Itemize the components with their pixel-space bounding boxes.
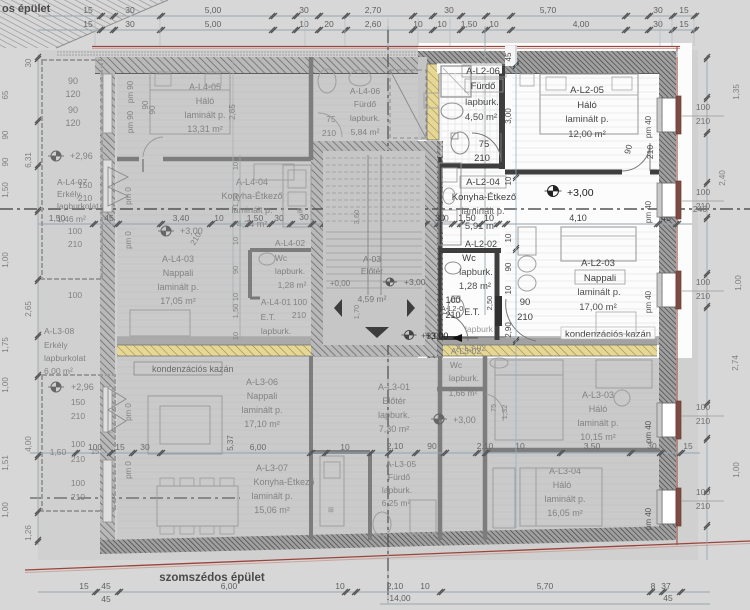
svg-text:1,50: 1,50 <box>247 213 264 223</box>
svg-text:Wc: Wc <box>450 360 463 370</box>
svg-text:15,06 m²: 15,06 m² <box>254 505 290 515</box>
svg-text:E.T.: E.T. <box>464 307 480 317</box>
svg-text:90: 90 <box>427 441 437 451</box>
svg-text:10: 10 <box>504 176 513 185</box>
svg-text:4,50 m²: 4,50 m² <box>465 112 497 123</box>
svg-text:100: 100 <box>68 290 82 300</box>
svg-text:45: 45 <box>104 213 114 223</box>
svg-text:Wc: Wc <box>462 253 476 264</box>
svg-text:pm 40: pm 40 <box>644 290 653 313</box>
svg-text:A-L4-01: A-L4-01 <box>261 297 292 307</box>
svg-text:10: 10 <box>231 293 240 301</box>
svg-text:laminált p.: laminált p. <box>251 491 292 501</box>
svg-text:pm 40: pm 40 <box>644 507 653 530</box>
svg-text:16,05 m²: 16,05 m² <box>547 508 583 518</box>
svg-text:pm 90: pm 90 <box>126 80 135 103</box>
svg-text:kondenzációs kazán: kondenzációs kazán <box>565 329 651 340</box>
svg-text:2,74: 2,74 <box>731 355 740 371</box>
svg-text:1,50: 1,50 <box>231 304 240 319</box>
svg-text:A-L3-05: A-L3-05 <box>386 459 417 469</box>
svg-text:lapburk.: lapburk. <box>378 410 410 420</box>
svg-text:3,00: 3,00 <box>504 108 513 124</box>
svg-text:pm 0: pm 0 <box>124 461 133 479</box>
svg-text:10: 10 <box>437 19 447 29</box>
svg-text:30: 30 <box>435 213 445 223</box>
svg-text:10: 10 <box>340 442 350 452</box>
svg-text:210: 210 <box>68 239 82 249</box>
svg-text:210: 210 <box>696 501 710 511</box>
svg-text:210: 210 <box>78 193 92 203</box>
svg-text:210: 210 <box>322 128 336 138</box>
svg-text:A-L2-04: A-L2-04 <box>466 177 500 188</box>
svg-text:pm 40: pm 40 <box>644 200 653 223</box>
svg-text:E.T.: E.T. <box>261 312 276 322</box>
svg-text:210: 210 <box>645 145 655 159</box>
svg-text:5,84 m²: 5,84 m² <box>351 127 380 137</box>
svg-text:17,05 m²: 17,05 m² <box>160 296 196 306</box>
svg-text:laminált p.: laminált p. <box>157 282 198 292</box>
svg-text:90: 90 <box>504 262 513 271</box>
svg-text:15: 15 <box>679 19 689 29</box>
svg-text:pm 0: pm 0 <box>124 187 133 205</box>
svg-text:Előtér: Előtér <box>382 396 406 406</box>
svg-text:Háló: Háló <box>577 100 597 111</box>
svg-text:Wc: Wc <box>275 253 288 263</box>
svg-text:13,31 m²: 13,31 m² <box>187 124 223 134</box>
svg-text:A-L3-01: A-L3-01 <box>378 382 410 392</box>
svg-text:2,65: 2,65 <box>24 301 33 317</box>
svg-text:210: 210 <box>696 416 710 426</box>
svg-text:+3,00: +3,00 <box>404 277 426 287</box>
svg-text:15: 15 <box>83 5 93 15</box>
svg-text:pm 0: pm 0 <box>124 231 133 249</box>
svg-text:1,50: 1,50 <box>49 213 66 223</box>
svg-text:1,75: 1,75 <box>1 337 10 353</box>
svg-text:1,50: 1,50 <box>458 213 476 223</box>
svg-text:1,35: 1,35 <box>732 84 741 100</box>
svg-text:5,37: 5,37 <box>226 435 235 451</box>
svg-text:lapburk.: lapburk. <box>350 113 380 123</box>
svg-text:Nappali: Nappali <box>247 391 278 401</box>
svg-text:75: 75 <box>489 404 498 412</box>
svg-text:lapburkolat: lapburkolat <box>44 353 86 363</box>
svg-text:2,40: 2,40 <box>718 170 727 186</box>
svg-text:3,50: 3,50 <box>584 441 601 451</box>
svg-text:30: 30 <box>24 58 33 67</box>
svg-text:30: 30 <box>125 19 135 29</box>
svg-text:Háló: Háló <box>553 480 572 490</box>
svg-text:1,00: 1,00 <box>1 252 10 268</box>
svg-text:210: 210 <box>292 310 306 320</box>
svg-text:10: 10 <box>515 441 525 451</box>
svg-text:30: 30 <box>125 5 135 15</box>
svg-text:30: 30 <box>274 213 284 223</box>
svg-text:210: 210 <box>445 310 460 320</box>
svg-text:lapburk.: lapburk. <box>275 266 305 276</box>
svg-text:⊞: ⊞ <box>328 507 334 514</box>
svg-text:15: 15 <box>79 581 89 591</box>
svg-text:10: 10 <box>420 581 430 591</box>
svg-text:A-L2-06: A-L2-06 <box>466 66 500 77</box>
svg-text:14,00: 14,00 <box>389 593 411 603</box>
svg-text:6,00: 6,00 <box>250 442 267 452</box>
svg-text:30: 30 <box>299 212 309 222</box>
svg-text:pm 0: pm 0 <box>124 403 133 421</box>
svg-text:+2,96: +2,96 <box>71 382 94 392</box>
svg-text:1,51: 1,51 <box>1 455 10 471</box>
svg-text:laminált p.: laminált p. <box>544 494 585 504</box>
svg-text:3,60: 3,60 <box>352 210 361 225</box>
svg-text:1,00: 1,00 <box>1 377 10 393</box>
svg-text:30: 30 <box>653 5 663 15</box>
svg-text:A-L3-07: A-L3-07 <box>256 463 288 473</box>
svg-text:1,26: 1,26 <box>24 525 33 541</box>
svg-text:240: 240 <box>693 204 707 214</box>
svg-text:Nappali: Nappali <box>163 268 194 278</box>
svg-text:+3,00: +3,00 <box>453 415 476 425</box>
svg-text:90: 90 <box>68 105 78 115</box>
svg-text:10: 10 <box>214 213 224 223</box>
svg-text:100: 100 <box>68 226 82 236</box>
svg-text:17,10 m²: 17,10 m² <box>244 419 280 429</box>
svg-text:A-L4-03: A-L4-03 <box>162 254 194 264</box>
svg-text:A-L2-03: A-L2-03 <box>581 258 615 269</box>
svg-text:10: 10 <box>231 237 240 245</box>
svg-text:Erkély: Erkély <box>44 340 68 350</box>
svg-text:pm 90: pm 90 <box>126 110 135 133</box>
svg-text:+3,00: +3,00 <box>567 187 594 199</box>
svg-text:2,10: 2,10 <box>477 441 494 451</box>
svg-text:1,28 m²: 1,28 m² <box>459 281 491 292</box>
svg-text:Nappali: Nappali <box>584 273 616 284</box>
svg-text:100: 100 <box>293 297 307 307</box>
svg-text:A-L3-08: A-L3-08 <box>44 326 75 336</box>
svg-text:30: 30 <box>299 5 309 15</box>
svg-text:15: 15 <box>115 442 125 452</box>
svg-text:10: 10 <box>335 581 345 591</box>
svg-text:6,00: 6,00 <box>221 581 238 591</box>
svg-text:10: 10 <box>504 233 513 242</box>
svg-text:os épület: os épület <box>2 3 51 15</box>
svg-text:laminált p.: laminált p. <box>565 114 608 125</box>
svg-text:30: 30 <box>444 5 454 15</box>
svg-text:6,25 m²: 6,25 m² <box>382 498 411 508</box>
svg-text:90: 90 <box>231 266 240 274</box>
svg-text:lapburk: lapburk <box>465 324 494 334</box>
svg-text:A-L3-02: A-L3-02 <box>456 343 487 353</box>
svg-text:15: 15 <box>679 5 689 15</box>
svg-text:150: 150 <box>71 397 85 407</box>
svg-text:5,00: 5,00 <box>205 5 222 15</box>
svg-text:17,00 m²: 17,00 m² <box>579 302 617 313</box>
svg-text:4,10: 4,10 <box>569 213 587 223</box>
svg-text:Előtér: Előtér <box>361 266 383 276</box>
svg-text:3,40: 3,40 <box>173 213 190 223</box>
svg-text:laminált p.: laminált p. <box>577 418 618 428</box>
svg-text:laminált p.: laminált p. <box>184 110 225 120</box>
svg-text:6,00 m²: 6,00 m² <box>44 366 73 376</box>
svg-text:Fürdő: Fürdő <box>471 81 496 92</box>
svg-text:10: 10 <box>504 285 513 294</box>
svg-text:150: 150 <box>78 180 92 190</box>
svg-text:kondenzációs kazán: kondenzációs kazán <box>152 364 234 374</box>
svg-text:1,00: 1,00 <box>734 275 743 291</box>
svg-text:2,70: 2,70 <box>365 5 382 15</box>
svg-text:1,70: 1,70 <box>352 305 361 320</box>
svg-text:1,50: 1,50 <box>1 182 10 198</box>
svg-text:90: 90 <box>520 297 531 308</box>
svg-text:A-L2-02: A-L2-02 <box>465 239 497 249</box>
svg-text:210: 210 <box>696 291 710 301</box>
svg-text:Konyha-Étkező: Konyha-Étkező <box>253 477 314 487</box>
svg-text:210: 210 <box>696 116 710 126</box>
svg-text:lapburk.: lapburk. <box>261 326 291 336</box>
svg-text:120: 120 <box>65 89 80 99</box>
svg-text:100: 100 <box>696 277 710 287</box>
svg-text:+2,96: +2,96 <box>70 151 93 161</box>
svg-text:A-L4-02: A-L4-02 <box>275 238 306 248</box>
svg-text:1,28 m²: 1,28 m² <box>278 280 307 290</box>
svg-text:1,00: 1,00 <box>732 462 741 478</box>
svg-text:2,50: 2,50 <box>485 296 494 311</box>
svg-text:szomszédos épület: szomszédos épület <box>159 572 265 584</box>
svg-text:2,10: 2,10 <box>387 581 404 591</box>
svg-text:4,59 m²: 4,59 m² <box>358 294 387 304</box>
svg-text:5,70: 5,70 <box>537 581 554 591</box>
svg-text:100: 100 <box>71 439 85 449</box>
svg-text:A-L2-05: A-L2-05 <box>570 85 604 96</box>
svg-text:210: 210 <box>517 312 533 323</box>
svg-text:90: 90 <box>68 76 78 86</box>
svg-text:pm 40: pm 40 <box>644 115 653 138</box>
svg-text:100: 100 <box>696 402 710 412</box>
svg-text:lapburk.: lapburk. <box>465 97 499 108</box>
svg-text:10: 10 <box>489 19 499 29</box>
svg-text:210: 210 <box>474 153 490 164</box>
svg-text:30: 30 <box>140 442 150 452</box>
svg-text:Konyha-Étkező: Konyha-Étkező <box>452 192 516 203</box>
svg-text:+3,00: +3,00 <box>426 331 449 341</box>
svg-text:15: 15 <box>83 19 93 29</box>
svg-text:Fürdő: Fürdő <box>388 472 410 482</box>
svg-text:100: 100 <box>71 478 85 488</box>
svg-text:1,50: 1,50 <box>50 447 67 457</box>
svg-text:lapburk.: lapburk. <box>449 373 479 383</box>
svg-text:A-L3-03: A-L3-03 <box>582 390 614 400</box>
svg-text:90: 90 <box>148 105 157 114</box>
svg-text:+3,00: +3,00 <box>180 226 203 236</box>
svg-text:1,66 m²: 1,66 m² <box>449 388 478 398</box>
svg-text:90: 90 <box>1 130 10 139</box>
svg-text:2,90: 2,90 <box>504 322 513 338</box>
svg-text:120: 120 <box>65 118 80 128</box>
svg-text:2,65: 2,65 <box>228 104 237 120</box>
svg-text:30: 30 <box>653 19 663 29</box>
svg-text:210: 210 <box>71 492 85 502</box>
svg-text:10: 10 <box>299 19 309 29</box>
svg-text:4,00: 4,00 <box>24 436 33 452</box>
svg-text:45: 45 <box>663 593 673 603</box>
svg-text:15: 15 <box>683 441 693 451</box>
svg-text:A-L4-06: A-L4-06 <box>350 86 381 96</box>
svg-text:45: 45 <box>504 52 513 61</box>
svg-text:2,60: 2,60 <box>365 19 382 29</box>
svg-text:100: 100 <box>445 295 460 305</box>
svg-text:5,00: 5,00 <box>205 19 222 29</box>
svg-text:5,70: 5,70 <box>540 5 557 15</box>
svg-text:Háló: Háló <box>589 404 608 414</box>
svg-text:210: 210 <box>71 411 85 421</box>
svg-text:10: 10 <box>484 213 494 223</box>
svg-text:A-L3-06: A-L3-06 <box>246 377 278 387</box>
svg-text:100: 100 <box>696 487 710 497</box>
svg-text:lapburk.: lapburk. <box>459 267 493 278</box>
svg-text:100: 100 <box>696 102 710 112</box>
svg-text:12,00 m²: 12,00 m² <box>568 129 606 140</box>
svg-text:10: 10 <box>231 162 240 170</box>
svg-text:45: 45 <box>101 581 111 591</box>
svg-text:+0,00: +0,00 <box>330 279 351 288</box>
svg-text:Háló: Háló <box>196 96 215 106</box>
svg-text:6,31: 6,31 <box>24 152 33 168</box>
svg-text:1,32: 1,32 <box>500 405 509 420</box>
svg-text:lapburk.: lapburk. <box>382 485 412 495</box>
svg-text:100: 100 <box>88 442 102 452</box>
svg-text:10: 10 <box>231 332 240 340</box>
svg-text:65: 65 <box>1 90 10 99</box>
svg-text:Fürdő: Fürdő <box>354 99 376 109</box>
svg-text:100: 100 <box>696 187 710 197</box>
svg-text:4,00: 4,00 <box>573 19 590 29</box>
svg-text:75: 75 <box>479 139 490 150</box>
svg-text:2,10: 2,10 <box>387 441 404 451</box>
svg-text:20: 20 <box>324 19 334 29</box>
svg-text:90: 90 <box>1 157 10 166</box>
svg-text:pm 40: pm 40 <box>644 420 653 443</box>
svg-text:laminált p.: laminált p. <box>241 405 282 415</box>
svg-text:A-L4-04: A-L4-04 <box>236 177 268 187</box>
svg-text:laminált p.: laminált p. <box>577 287 620 298</box>
svg-text:A-03: A-03 <box>363 254 381 264</box>
svg-text:45: 45 <box>101 594 111 604</box>
svg-text:7,30 m²: 7,30 m² <box>379 424 410 434</box>
svg-text:1,00: 1,00 <box>1 502 10 518</box>
svg-text:1,50: 1,50 <box>231 193 240 208</box>
